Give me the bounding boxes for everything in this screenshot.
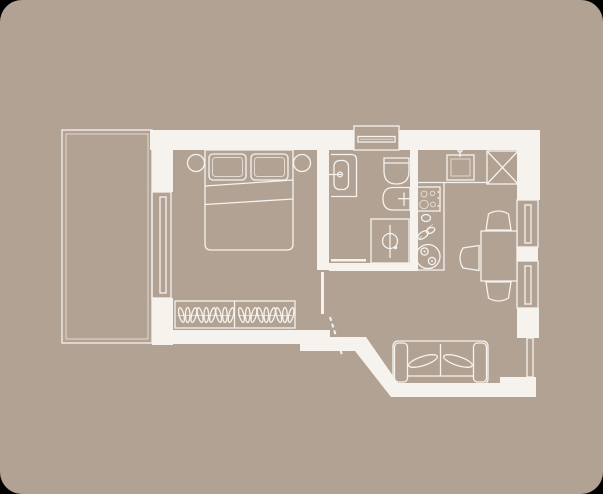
cup (422, 215, 431, 222)
sofa-pillow-left (407, 352, 438, 370)
right-window-1 (517, 200, 538, 247)
sofa-armrest-left (395, 343, 408, 382)
left-wall-upper (152, 130, 173, 192)
nightstand-right (294, 155, 311, 172)
sofa (393, 341, 488, 384)
nightstand-left (188, 155, 205, 172)
kitchen-sink (447, 147, 474, 180)
right-window-2 (517, 261, 538, 308)
floor-plan-card (0, 0, 603, 494)
floor-plan-drawing (0, 0, 603, 494)
left-window (152, 192, 171, 298)
bedroom-furniture (175, 150, 311, 328)
dining-set (460, 211, 517, 301)
right-window-pier (517, 247, 538, 261)
stove-knob (437, 191, 439, 193)
screenshot-stage (0, 0, 603, 494)
balcony-railing-outer (62, 130, 152, 343)
sofa-pillow-right (442, 352, 473, 370)
chair-top (486, 211, 511, 230)
top-window (354, 126, 399, 150)
fridge (487, 151, 518, 184)
shower-drain-dot (394, 246, 397, 249)
sofa-armrest-right (474, 343, 487, 382)
stove-knob (437, 197, 439, 199)
balcony-railing-inner (66, 134, 148, 339)
wardrobe (175, 301, 295, 328)
round-decor (416, 245, 440, 269)
balcony (62, 130, 152, 343)
chair-bottom (486, 282, 511, 301)
burner (431, 202, 436, 207)
kitchen-sink-bowl (451, 159, 470, 176)
burner (430, 191, 434, 195)
stove (417, 187, 440, 211)
washbasin (329, 155, 357, 197)
burner (421, 191, 427, 197)
bathroom-fixtures (329, 155, 412, 264)
right-lower-wall-block (517, 308, 539, 338)
shower (371, 219, 409, 263)
bedroom-door-leaf (321, 272, 324, 314)
stove-knob (437, 205, 439, 207)
top-wall-left (150, 130, 354, 150)
kitchen-counter (418, 183, 487, 271)
lower-right-window (527, 338, 533, 377)
bidet (383, 188, 412, 211)
toilet (384, 158, 409, 184)
chair-left (460, 246, 479, 271)
top-right-corner-wall (517, 130, 540, 200)
decor-sketch (416, 225, 435, 242)
burner (420, 200, 429, 209)
bathroom-door-line (331, 259, 366, 262)
dining-table (481, 231, 517, 281)
bathroom-bottom-wall (329, 263, 418, 271)
bedroom-bathroom-wall (317, 150, 329, 270)
